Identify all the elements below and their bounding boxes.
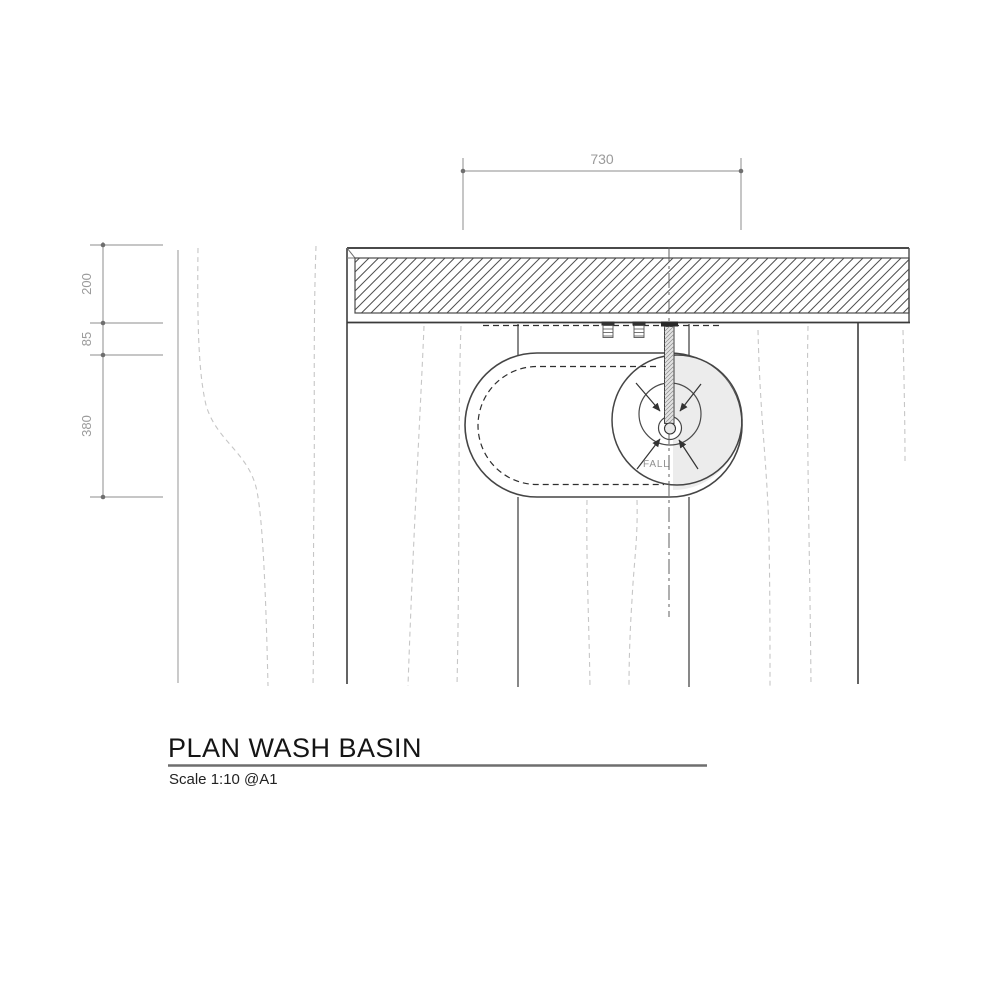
plan-wash-basin-drawing: FALL 730 200 85 380 PLAN WASH BASIN Sc bbox=[0, 0, 1000, 1000]
dim-tick bbox=[101, 243, 106, 248]
dim-value-200: 200 bbox=[79, 273, 94, 295]
drawing-title: PLAN WASH BASIN bbox=[168, 733, 422, 763]
paper-background bbox=[0, 0, 1000, 1000]
dim-tick bbox=[101, 353, 106, 358]
fall-label: FALL bbox=[643, 459, 670, 470]
dim-tick bbox=[461, 169, 466, 174]
spout-outlet bbox=[665, 423, 676, 434]
drawing-sheet: FALL 730 200 85 380 PLAN WASH BASIN Sc bbox=[0, 0, 1000, 1000]
countertop bbox=[347, 248, 910, 323]
dim-value-380: 380 bbox=[79, 415, 94, 437]
dim-tick bbox=[101, 321, 106, 326]
dim-tick bbox=[101, 495, 106, 500]
scale-note: Scale 1:10 @A1 bbox=[169, 771, 278, 788]
counter-hatch-section bbox=[355, 258, 909, 313]
dim-value-730: 730 bbox=[590, 151, 614, 167]
tap-handle-left bbox=[602, 322, 615, 338]
dim-value-85: 85 bbox=[79, 332, 94, 346]
tap-handle-right bbox=[633, 322, 646, 338]
dim-tick bbox=[739, 169, 744, 174]
